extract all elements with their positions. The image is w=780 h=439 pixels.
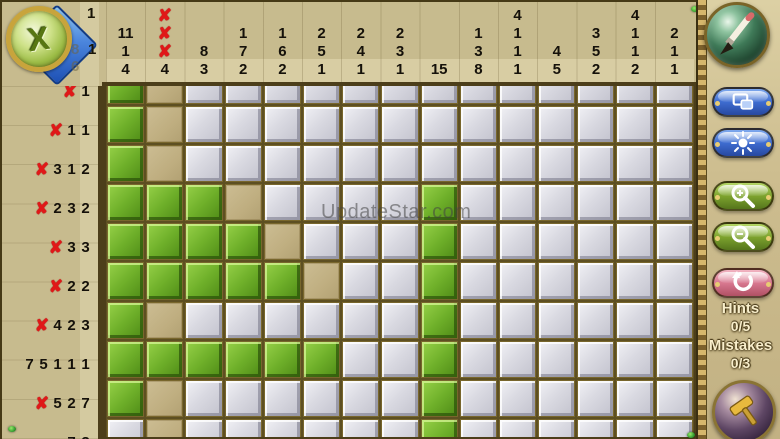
- grid-cell-blank[interactable]: [184, 379, 223, 418]
- grid-cell-blank[interactable]: [459, 301, 498, 340]
- row-clue: ✘1: [2, 86, 98, 111]
- clue-number: 8: [198, 43, 209, 61]
- clue-number: 3: [80, 317, 91, 335]
- clue-number: 7: [24, 356, 35, 374]
- clue-number: 5: [52, 395, 63, 413]
- grid-cell-marked-empty[interactable]: [145, 105, 184, 144]
- grid-cell-marked-empty[interactable]: [224, 183, 263, 222]
- grid-cell-filled[interactable]: [184, 183, 223, 222]
- grid-cell-blank[interactable]: [615, 340, 654, 379]
- grid-cell-blank[interactable]: [655, 183, 694, 222]
- clue-number: 3: [198, 61, 209, 79]
- corner-clue-number: 1: [88, 41, 96, 58]
- grid-cell-blank[interactable]: [380, 301, 419, 340]
- corner-clue-number-faded: 6: [71, 58, 79, 75]
- new-window-button[interactable]: [712, 87, 774, 117]
- clue-number: 4: [52, 317, 63, 335]
- grid-cell-filled[interactable]: [106, 261, 145, 300]
- grid-cell-filled[interactable]: [224, 261, 263, 300]
- grid-cell-filled[interactable]: [145, 183, 184, 222]
- clue-number: 1: [238, 25, 249, 43]
- grid-cell-marked-empty[interactable]: [145, 82, 184, 105]
- grid-cell-blank[interactable]: [420, 82, 459, 105]
- grid-cell-blank[interactable]: [576, 183, 615, 222]
- grid-cell-blank[interactable]: [302, 222, 341, 261]
- grid-cell-blank[interactable]: [615, 144, 654, 183]
- grid-cell-filled[interactable]: [106, 105, 145, 144]
- grid-cell-blank[interactable]: [615, 82, 654, 105]
- grid-cell-blank[interactable]: [263, 301, 302, 340]
- clue-cross-icon: ✘: [49, 239, 63, 257]
- grid-cell-blank[interactable]: [615, 301, 654, 340]
- grid-cell-filled[interactable]: [302, 340, 341, 379]
- magnifier-minus-icon: [728, 224, 758, 250]
- clue-number: 1: [80, 86, 91, 101]
- clue-number: 7: [80, 395, 91, 413]
- grid-cell-blank[interactable]: [341, 183, 380, 222]
- grid-cell-blank[interactable]: [576, 261, 615, 300]
- grid-cell-blank[interactable]: [537, 105, 576, 144]
- grid-cell-blank[interactable]: [184, 144, 223, 183]
- grid-cell-blank[interactable]: [302, 105, 341, 144]
- grid-frame: [102, 82, 697, 439]
- grid-cell-blank[interactable]: [615, 418, 654, 439]
- grid-cell-blank[interactable]: [537, 183, 576, 222]
- grid-cell-blank[interactable]: [341, 82, 380, 105]
- grid-cell-blank[interactable]: [263, 183, 302, 222]
- grid-cell-marked-empty[interactable]: [145, 379, 184, 418]
- grid-cell-blank[interactable]: [380, 82, 419, 105]
- column-clue: 172: [224, 2, 263, 82]
- column-clue: 4111: [498, 2, 537, 82]
- grid-cell-blank[interactable]: [263, 144, 302, 183]
- clue-cross-icon: ✘: [49, 122, 63, 140]
- column-clue: 162: [263, 2, 302, 82]
- clue-number: 5: [551, 61, 562, 79]
- grid-cell-blank[interactable]: [576, 418, 615, 439]
- grid-cell-marked-empty[interactable]: [145, 144, 184, 183]
- corner-clue-number-faded: 8: [71, 41, 79, 58]
- clue-number: 1: [316, 61, 327, 79]
- clue-number: 4: [630, 7, 641, 25]
- grid-cell-blank[interactable]: [341, 261, 380, 300]
- grid-cell-blank[interactable]: [380, 105, 419, 144]
- grid-cell-blank[interactable]: [498, 379, 537, 418]
- column-clues: 1114✘✘✘483172162251241231151384111453524…: [106, 2, 694, 86]
- clue-number: 2: [669, 25, 680, 43]
- grid-cell-blank[interactable]: [341, 222, 380, 261]
- clue-number: 2: [238, 61, 249, 79]
- clue-cross-icon: ✘: [158, 25, 172, 43]
- grid-cell-blank[interactable]: [537, 261, 576, 300]
- grid-cell-filled[interactable]: [420, 261, 459, 300]
- grid-cell-blank[interactable]: [498, 144, 537, 183]
- grid-cell-filled[interactable]: [420, 418, 459, 439]
- row-clues: ✘1✘11✘312✘232✘33✘22✘42375111✘52773: [2, 86, 102, 439]
- grid-cell-blank[interactable]: [302, 301, 341, 340]
- grid-cell-blank[interactable]: [224, 105, 263, 144]
- grid-cell-blank[interactable]: [655, 301, 694, 340]
- grid-cell-filled[interactable]: [145, 340, 184, 379]
- clue-cross-icon: ✘: [158, 43, 172, 61]
- clue-number: 3: [66, 239, 77, 257]
- grid-cell-blank[interactable]: [576, 105, 615, 144]
- sparkle-icon: [728, 131, 758, 155]
- grid-cell-filled[interactable]: [263, 340, 302, 379]
- grid-cell-blank[interactable]: [655, 222, 694, 261]
- grid-cell-blank[interactable]: [184, 82, 223, 105]
- grid-cell-blank[interactable]: [498, 222, 537, 261]
- logo-medallion-icon: X: [6, 6, 72, 72]
- grid-cell-blank[interactable]: [263, 418, 302, 439]
- frame-gem-icon: [8, 426, 16, 432]
- grid-cell-blank[interactable]: [263, 82, 302, 105]
- grid-cell-blank[interactable]: [655, 105, 694, 144]
- grid-cell-blank[interactable]: [537, 418, 576, 439]
- game-logo: X: [4, 4, 98, 84]
- clue-number: 5: [316, 43, 327, 61]
- clue-number: 3: [52, 161, 63, 179]
- clue-number: 7: [66, 434, 77, 439]
- clue-number: 5: [38, 356, 49, 374]
- clue-number: 1: [630, 25, 641, 43]
- grid-cell-blank[interactable]: [224, 418, 263, 439]
- grid-cell-blank[interactable]: [341, 418, 380, 439]
- grid-cell-blank[interactable]: [263, 379, 302, 418]
- grid-cell-filled[interactable]: [106, 340, 145, 379]
- row-clue: 75111: [2, 346, 98, 385]
- grid-cell-blank[interactable]: [537, 222, 576, 261]
- grid-cell-filled[interactable]: [420, 183, 459, 222]
- grid-cell-blank[interactable]: [184, 418, 223, 439]
- grid-cell-marked-empty[interactable]: [263, 222, 302, 261]
- clue-cross-icon: ✘: [158, 7, 172, 25]
- grid-cell-filled[interactable]: [224, 340, 263, 379]
- grid-cell-blank[interactable]: [380, 144, 419, 183]
- column-clue: 138: [459, 2, 498, 82]
- clue-number: 1: [66, 122, 77, 140]
- grid-cell-blank[interactable]: [576, 379, 615, 418]
- clue-number: 2: [630, 61, 641, 79]
- grid-cell-blank[interactable]: [459, 261, 498, 300]
- clue-number: 1: [80, 356, 91, 374]
- grid-cell-blank[interactable]: [537, 144, 576, 183]
- clue-number: 2: [316, 25, 327, 43]
- row-clue: ✘527: [2, 385, 98, 424]
- grid-cell-blank[interactable]: [459, 222, 498, 261]
- grid-cell-blank[interactable]: [380, 183, 419, 222]
- grid-cell-blank[interactable]: [537, 82, 576, 105]
- grid-cell-blank[interactable]: [106, 418, 145, 439]
- grid-cell-blank[interactable]: [576, 222, 615, 261]
- grid-cell-blank[interactable]: [655, 144, 694, 183]
- clue-number: 2: [80, 161, 91, 179]
- grid-cell-filled[interactable]: [184, 261, 223, 300]
- grid-cell-blank[interactable]: [655, 340, 694, 379]
- clue-number: 1: [80, 122, 91, 140]
- clue-number: 4: [120, 61, 131, 79]
- grid-cell-blank[interactable]: [341, 301, 380, 340]
- clue-number: 1: [277, 25, 288, 43]
- solve-hammer-button[interactable]: [712, 380, 776, 439]
- window-icon: [727, 91, 759, 113]
- grid-cell-blank[interactable]: [459, 379, 498, 418]
- clue-number: 1: [66, 356, 77, 374]
- grid-cell-blank[interactable]: [224, 301, 263, 340]
- row-clue: ✘33: [2, 228, 98, 267]
- corner-clue-number: 1: [87, 5, 95, 22]
- column-clue: 211: [655, 2, 694, 82]
- clue-number: 6: [277, 43, 288, 61]
- clue-number: 3: [66, 200, 77, 218]
- clue-number: 2: [66, 278, 77, 296]
- grid-cell-marked-empty[interactable]: [302, 261, 341, 300]
- column-clue: 15: [420, 2, 459, 82]
- row-clue: ✘232: [2, 189, 98, 228]
- clue-number: 1: [473, 25, 484, 43]
- clue-number: 2: [66, 395, 77, 413]
- clue-number: 1: [120, 43, 131, 61]
- grid-cell-blank[interactable]: [615, 379, 654, 418]
- clue-number: 3: [590, 25, 601, 43]
- row-clue: ✘11: [2, 111, 98, 150]
- zoom-in-button[interactable]: [712, 181, 774, 211]
- grid-cell-filled[interactable]: [263, 261, 302, 300]
- clue-number: 3: [394, 43, 405, 61]
- clue-number: 1: [512, 61, 523, 79]
- clue-cross-icon: ✘: [35, 200, 49, 218]
- grid-cell-blank[interactable]: [380, 340, 419, 379]
- clue-number: 1: [669, 61, 680, 79]
- mistakes-value: 0/3: [704, 355, 777, 371]
- grid-cell-marked-empty[interactable]: [145, 301, 184, 340]
- row-clue: 73: [2, 424, 98, 439]
- row-clue: ✘22: [2, 267, 98, 306]
- column-clue: 251: [302, 2, 341, 82]
- clue-cross-icon: ✘: [35, 395, 49, 413]
- grid-cell-filled[interactable]: [420, 222, 459, 261]
- grid-cell-blank[interactable]: [576, 301, 615, 340]
- undo-arrow-icon: [729, 271, 757, 295]
- row-clue: ✘312: [2, 150, 98, 189]
- grid-cell-blank[interactable]: [498, 418, 537, 439]
- grid-cell-blank[interactable]: [459, 340, 498, 379]
- undo-button[interactable]: [712, 268, 774, 298]
- grid-cell-blank[interactable]: [184, 105, 223, 144]
- mistakes-label: Mistakes: [704, 337, 777, 354]
- grid-cell-blank[interactable]: [576, 82, 615, 105]
- grid-cell-filled[interactable]: [145, 261, 184, 300]
- grid-cell-blank[interactable]: [655, 261, 694, 300]
- hint-sparkle-button[interactable]: [712, 128, 774, 158]
- column-clue: 231: [380, 2, 419, 82]
- grid-cell-blank[interactable]: [459, 183, 498, 222]
- puzzle-grid: [106, 82, 694, 439]
- grid-cell-blank[interactable]: [498, 301, 537, 340]
- grid-cell-blank[interactable]: [380, 418, 419, 439]
- clue-number: 1: [355, 61, 366, 79]
- clue-number: 3: [473, 43, 484, 61]
- grid-cell-blank[interactable]: [420, 144, 459, 183]
- paintbrush-ball-button[interactable]: [704, 2, 770, 68]
- grid-cell-filled[interactable]: [106, 379, 145, 418]
- grid-cell-blank[interactable]: [537, 379, 576, 418]
- clue-number: 1: [512, 25, 523, 43]
- paintbrush-icon: [712, 10, 762, 60]
- column-clue: ✘✘✘4: [145, 2, 184, 82]
- grid-cell-blank[interactable]: [655, 82, 694, 105]
- clue-number: 15: [431, 61, 448, 79]
- clue-number: 1: [394, 61, 405, 79]
- clue-cross-icon: ✘: [49, 278, 63, 296]
- clue-number: 2: [394, 25, 405, 43]
- grid-cell-blank[interactable]: [420, 105, 459, 144]
- grid-cell-blank[interactable]: [498, 340, 537, 379]
- grid-cell-blank[interactable]: [576, 340, 615, 379]
- clue-number: 4: [355, 43, 366, 61]
- clue-number: 8: [473, 61, 484, 79]
- grid-cell-blank[interactable]: [615, 105, 654, 144]
- grid-cell-filled[interactable]: [106, 183, 145, 222]
- grid-cell-blank[interactable]: [615, 261, 654, 300]
- grid-cell-blank[interactable]: [263, 105, 302, 144]
- grid-cell-marked-empty[interactable]: [145, 418, 184, 439]
- frame-gem-icon: [687, 432, 695, 438]
- hints-label: Hints: [704, 300, 777, 317]
- clue-number: 2: [52, 200, 63, 218]
- grid-cell-filled[interactable]: [106, 222, 145, 261]
- clue-number: 5: [590, 43, 601, 61]
- hints-value: 0/5: [704, 318, 777, 334]
- grid-cell-blank[interactable]: [459, 82, 498, 105]
- grid-cell-blank[interactable]: [224, 379, 263, 418]
- grid-cell-filled[interactable]: [420, 340, 459, 379]
- grid-cell-filled[interactable]: [106, 144, 145, 183]
- grid-cell-blank[interactable]: [341, 379, 380, 418]
- grid-cell-filled[interactable]: [420, 379, 459, 418]
- grid-cell-blank[interactable]: [302, 183, 341, 222]
- grid-cell-filled[interactable]: [420, 301, 459, 340]
- clue-number: 7: [238, 43, 249, 61]
- column-clue: 4112: [616, 2, 655, 82]
- grid-cell-blank[interactable]: [341, 340, 380, 379]
- grid-cell-blank[interactable]: [224, 82, 263, 105]
- grid-cell-blank[interactable]: [498, 261, 537, 300]
- grid-cell-blank[interactable]: [302, 418, 341, 439]
- clue-number: 2: [80, 278, 91, 296]
- grid-cell-blank[interactable]: [615, 222, 654, 261]
- grid-cell-blank[interactable]: [224, 144, 263, 183]
- clue-cross-icon: ✘: [35, 161, 49, 179]
- clue-number: 1: [512, 43, 523, 61]
- grid-cell-blank[interactable]: [341, 144, 380, 183]
- grid-cell-filled[interactable]: [184, 340, 223, 379]
- game-screen: X 1 8 1 6 1114✘✘✘48317216225124123115138…: [0, 0, 780, 439]
- grid-cell-filled[interactable]: [184, 222, 223, 261]
- grid-cell-blank[interactable]: [302, 379, 341, 418]
- clue-number: 4: [512, 7, 523, 25]
- grid-cell-blank[interactable]: [184, 301, 223, 340]
- hammer-icon: [720, 388, 768, 436]
- grid-cell-blank[interactable]: [380, 261, 419, 300]
- grid-cell-blank[interactable]: [498, 183, 537, 222]
- clue-number: 2: [80, 200, 91, 218]
- clue-number: 2: [590, 61, 601, 79]
- grid-cell-blank[interactable]: [498, 105, 537, 144]
- grid-cell-blank[interactable]: [655, 379, 694, 418]
- clue-number: 1: [630, 43, 641, 61]
- clue-number: 3: [80, 239, 91, 257]
- grid-cell-blank[interactable]: [537, 340, 576, 379]
- sidebar-ornament-border: [696, 0, 707, 439]
- clue-number: 4: [159, 61, 170, 79]
- column-clue: 45: [537, 2, 576, 82]
- column-clue: 352: [576, 2, 615, 82]
- grid-cell-blank[interactable]: [380, 379, 419, 418]
- magnifier-plus-icon: [728, 183, 758, 209]
- grid-cell-filled[interactable]: [106, 301, 145, 340]
- grid-cell-filled[interactable]: [106, 82, 145, 105]
- clue-number: 1: [669, 43, 680, 61]
- grid-cell-blank[interactable]: [459, 144, 498, 183]
- clue-number: 1: [66, 161, 77, 179]
- clue-number: 11: [118, 25, 134, 43]
- clue-number: 2: [355, 25, 366, 43]
- grid-cell-blank[interactable]: [537, 301, 576, 340]
- grid-cell-blank[interactable]: [341, 105, 380, 144]
- column-clue: 83: [184, 2, 223, 82]
- grid-cell-blank[interactable]: [576, 144, 615, 183]
- grid-cell-blank[interactable]: [498, 82, 537, 105]
- column-clue: 1114: [106, 2, 145, 82]
- clue-number: 1: [52, 356, 63, 374]
- clue-number: 4: [551, 43, 562, 61]
- column-clue: 241: [341, 2, 380, 82]
- clue-number: 2: [277, 61, 288, 79]
- grid-cell-blank[interactable]: [302, 82, 341, 105]
- grid-cell-filled[interactable]: [224, 222, 263, 261]
- puzzle-board: X 1 8 1 6 1114✘✘✘48317216225124123115138…: [0, 0, 697, 439]
- grid-cell-filled[interactable]: [145, 222, 184, 261]
- clue-number: 3: [80, 434, 91, 439]
- row-clue: ✘423: [2, 307, 98, 346]
- clue-number: 2: [66, 317, 77, 335]
- grid-cell-blank[interactable]: [459, 105, 498, 144]
- zoom-out-button[interactable]: [712, 222, 774, 252]
- grid-cell-blank[interactable]: [380, 222, 419, 261]
- grid-cell-blank[interactable]: [302, 144, 341, 183]
- clue-cross-icon: ✘: [63, 86, 77, 101]
- clue-cross-icon: ✘: [35, 317, 49, 335]
- grid-cell-blank[interactable]: [459, 418, 498, 439]
- grid-cell-blank[interactable]: [615, 183, 654, 222]
